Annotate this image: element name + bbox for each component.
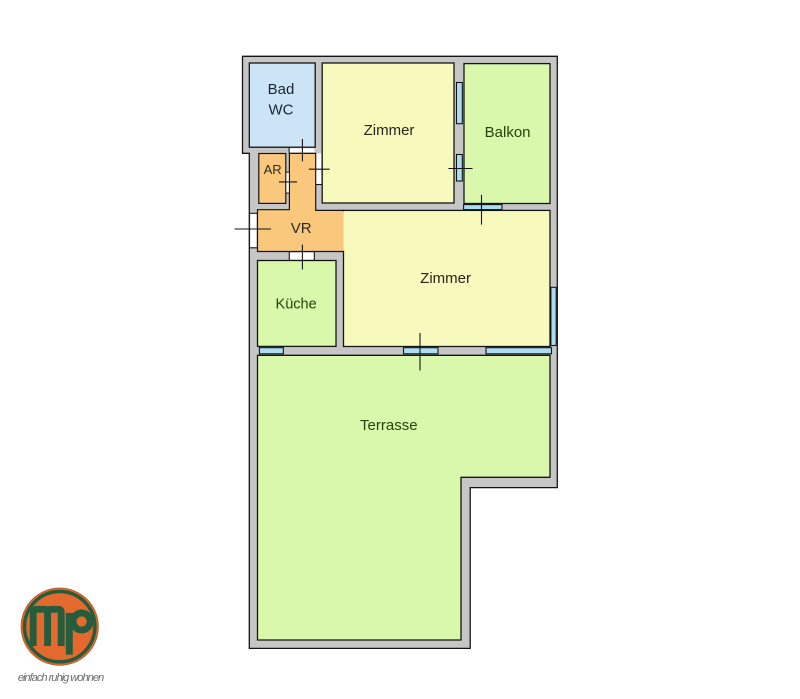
svg-text:Balkon: Balkon <box>485 124 531 141</box>
svg-text:einfach ruhig wohnen: einfach ruhig wohnen <box>18 672 104 684</box>
svg-text:Küche: Küche <box>276 296 317 312</box>
svg-text:AR: AR <box>264 162 282 177</box>
svg-text:Zimmer: Zimmer <box>420 270 471 287</box>
svg-text:Terrasse: Terrasse <box>360 417 418 434</box>
svg-text:Zimmer: Zimmer <box>364 122 415 139</box>
svg-text:VR: VR <box>291 220 312 237</box>
svg-text:WC: WC <box>269 101 294 118</box>
svg-text:Bad: Bad <box>268 81 295 98</box>
